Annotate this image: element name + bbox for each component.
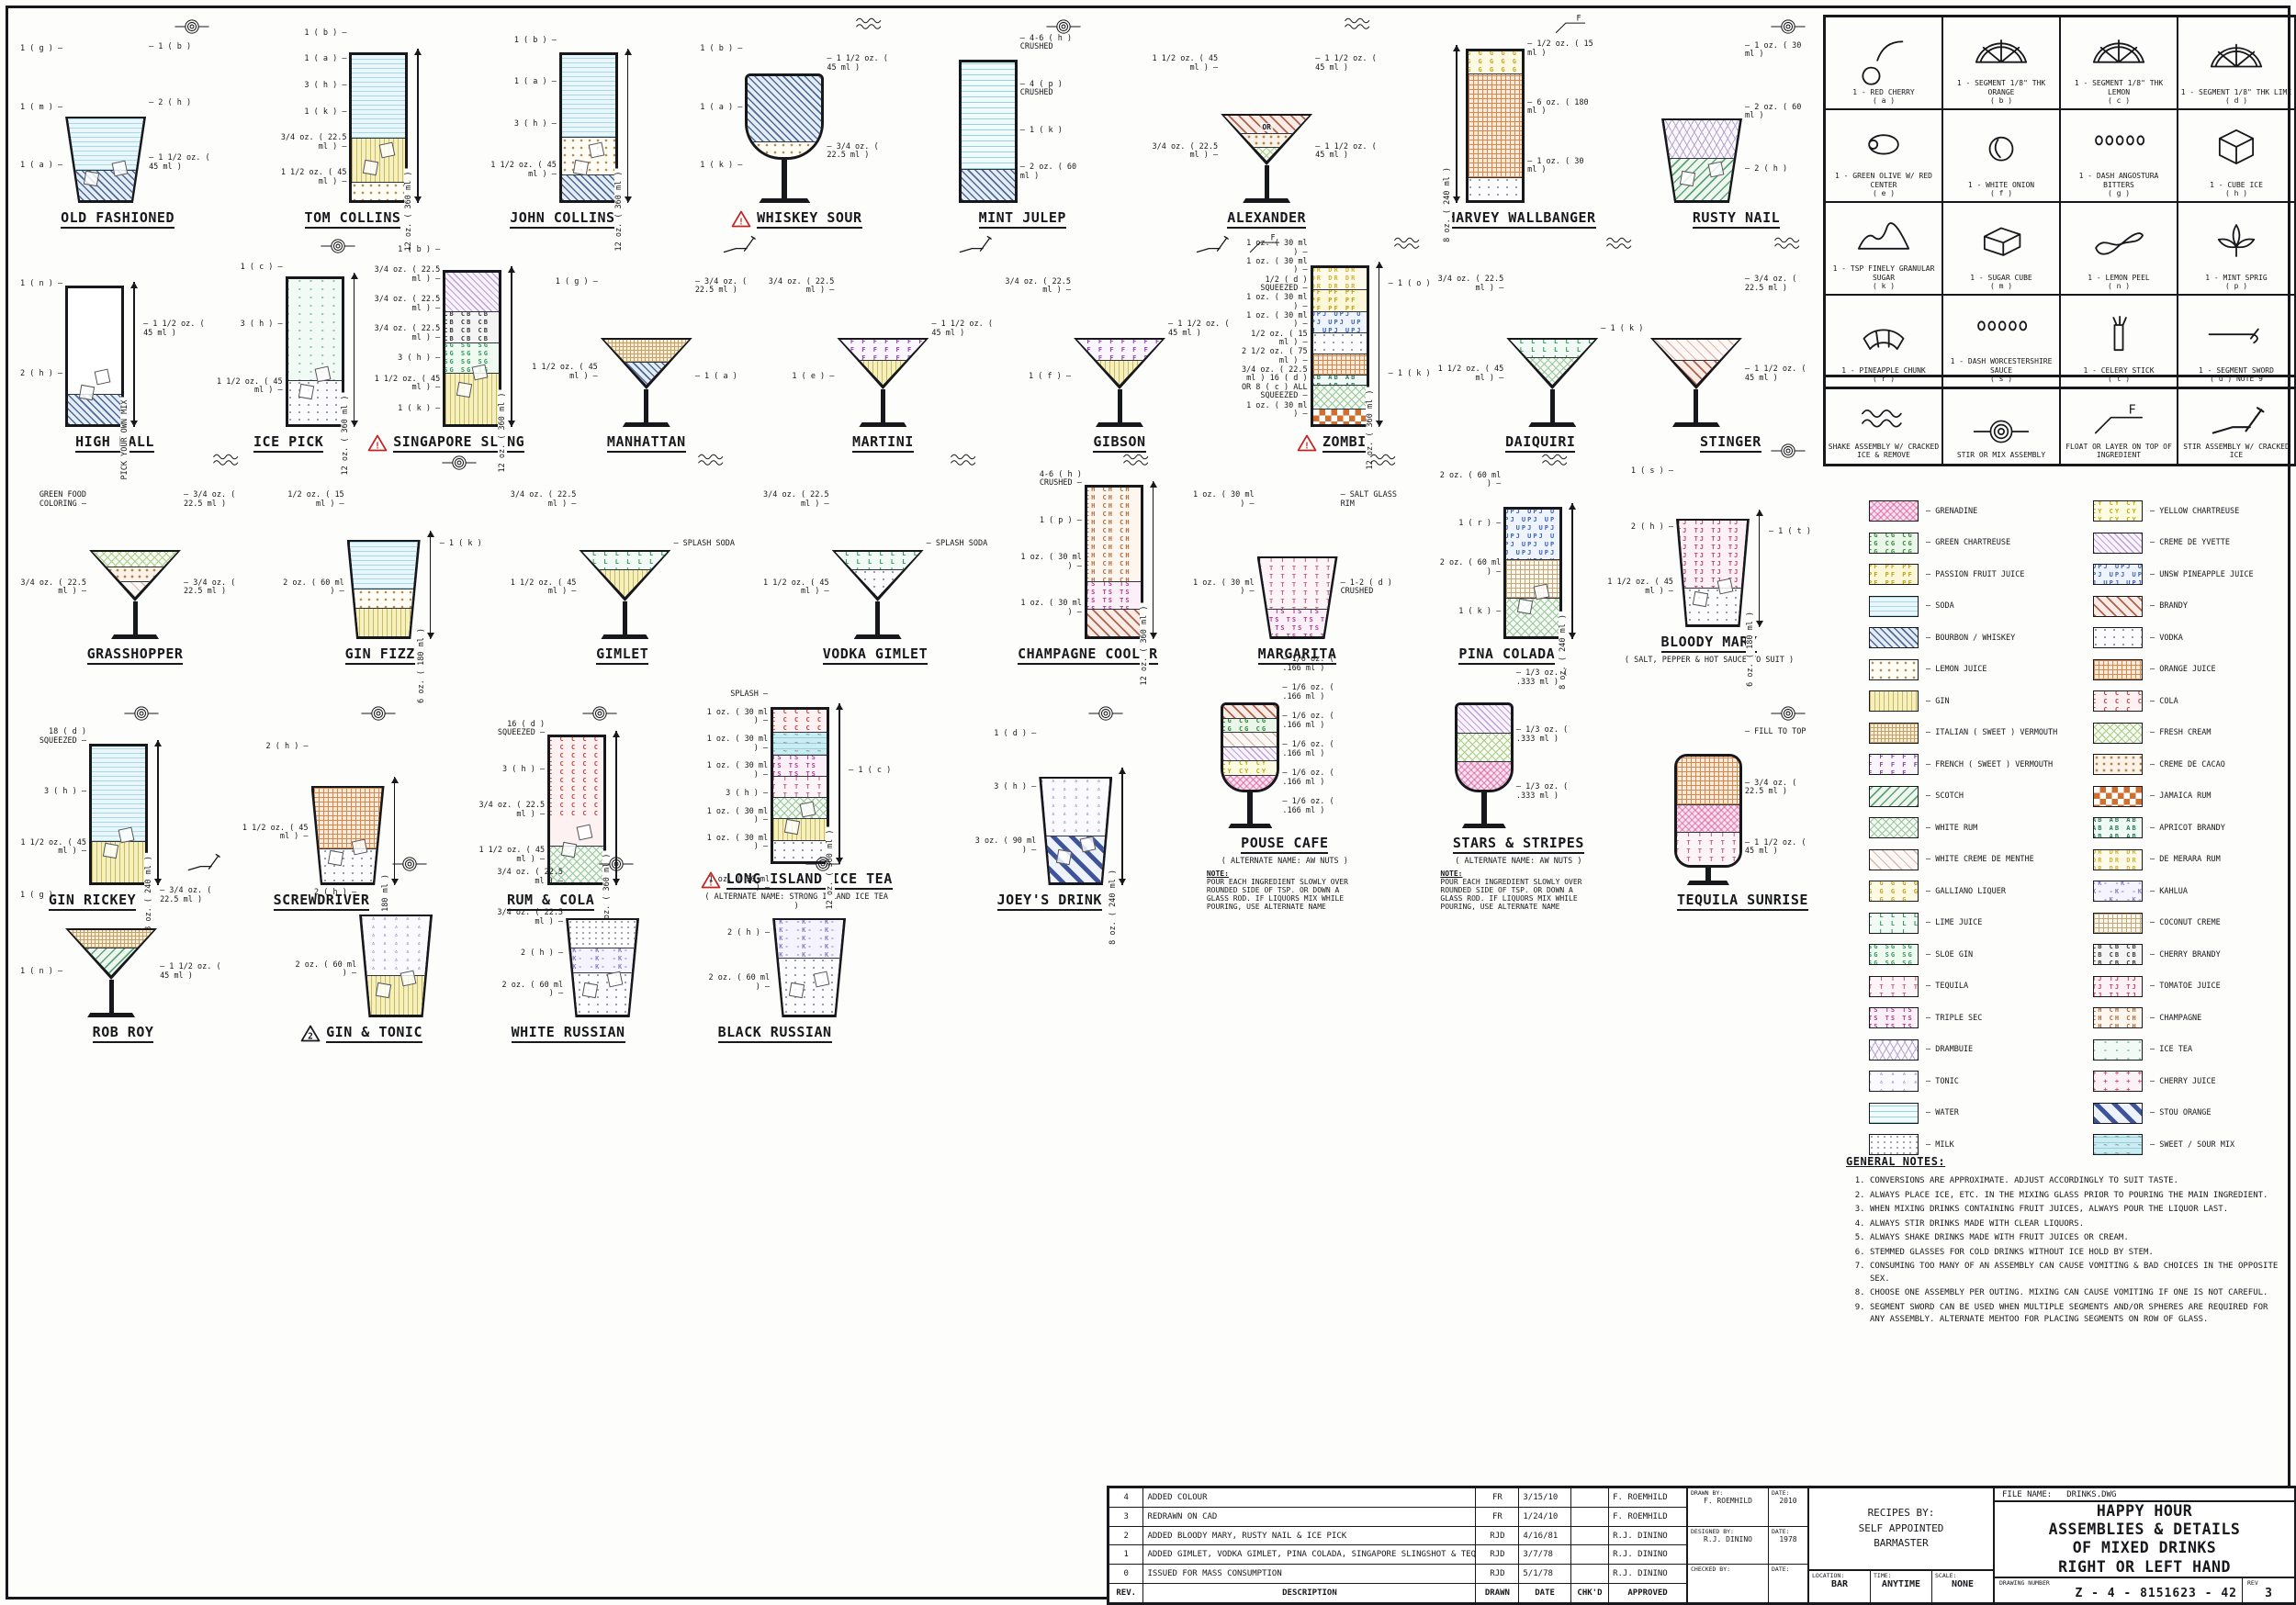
callout: 2 ( h ) —: [1607, 523, 1673, 533]
assembly-symbol-shake: [945, 451, 984, 478]
pattern-letters: -K- -K- -K- -K- -K- -K- -K- -K- -K- -K- …: [775, 920, 843, 958]
ingredient-column-left: — GRENADINECG CG CG CG CG CG CG CG CG CG…: [1869, 500, 2067, 1155]
garnish-1-segment-1-8-thk-lime: 1 - SEGMENT 1/8" THK LIME( d ): [2178, 17, 2295, 109]
assembly-symbol-rod: [184, 852, 222, 880]
ingredient-cherry-juice: + + + + + + + + + + + + + + — CHERRY JUI…: [2093, 1071, 2291, 1092]
drink-name-row: MINT JULEP: [979, 209, 1066, 229]
callout: — 1 1/2 oz. ( 45 ml ): [149, 154, 215, 172]
callouts-right: — 4-6 ( h ) CRUSHED— 4 ( p ) CRUSHED— 1 …: [1020, 20, 1086, 203]
ingredient-layer-yvette: [1458, 705, 1511, 733]
date-value: 2010: [1772, 1497, 1805, 1505]
location-time-scale: LOCATION: BAR TIME: ANYTIME SCALE: NONE: [1809, 1571, 1993, 1602]
glass-inner: -K- -K- -K- -K- -K- -K- -K- -K- -K- -K- …: [775, 920, 843, 1015]
drink-daiquiri: 3/4 oz. ( 22.5 ml ) —1 1/2 oz. ( 45 ml )…: [1437, 234, 1643, 453]
callout: 1 1/2 oz. ( 45 ml ) —: [763, 579, 829, 597]
callouts-right: — 1 1/2 oz. ( 45 ml )— 1 1/2 oz. ( 45 ml…: [1315, 20, 1381, 203]
flag-note-icon: 2: [300, 1025, 321, 1042]
dimension: 8 oz. ( 240 ml ): [1449, 45, 1463, 203]
glass-body: [1455, 702, 1514, 792]
ingredient-green-chartreuse: CG CG CG CG CG CG CG CG CG CG CG CG CG C…: [1869, 533, 2067, 554]
shake-icon: [1851, 404, 1916, 443]
drink-stage: 1 ( s ) —2 ( h ) —1 1/2 oz. ( 45 ml ) —T…: [1607, 439, 1811, 627]
ingredient-layer-ssmix: ~ ~ ~ ~ ~ ~ ~ ~ ~ ~ ~ ~ ~ ~ ~ ~ ~ ~ ~ ~ …: [773, 732, 827, 755]
glass-inner: [1654, 340, 1739, 385]
mound-icon: [1852, 206, 1915, 264]
dimension: 12 oz. ( 360 ml ): [347, 273, 361, 427]
garnish-1-pineapple-chunk: 1 - PINEAPPLE CHUNK( r ): [1825, 295, 1942, 387]
drink-name-row: TOM COLLINS: [305, 209, 401, 229]
garnish-label: 1 - WHITE ONION: [1968, 181, 2034, 190]
glass-body: UPJ UPJ UPJ UPJ UPJ UPJ UPJ UPJ UPJ UPJ …: [1503, 507, 1562, 639]
ice-cube: [784, 819, 800, 835]
callout: 3/4 oz. ( 22.5 ml ) —: [374, 325, 440, 342]
drink-gimlet: 3/4 oz. ( 22.5 ml ) —1 1/2 oz. ( 45 ml )…: [510, 451, 735, 665]
assembly-label: FLOAT OR LAYER ON TOP OF INGREDIENT: [2063, 443, 2175, 460]
revision-cell: ADDED BLOODY MARY, RUSTY NAIL & ICE PICK: [1143, 1527, 1476, 1545]
garnish-label: 1 - LEMON PEEL: [2088, 274, 2149, 283]
callout: 1 1/2 oz. ( 45 ml ) —: [532, 364, 598, 381]
dimension: 12 oz. ( 360 ml ): [504, 266, 518, 427]
ingredient-label: — SCOTCH: [1926, 791, 1964, 801]
shake-icon: [1769, 234, 1807, 258]
float-icon: F: [1245, 234, 1284, 258]
olive-icon: [1852, 113, 1915, 172]
drink-name-row: HARVEY WALLBANGER: [1447, 209, 1596, 229]
ingredient-layer-cola: C C C C C C C C C C C C C C C C C C C C …: [773, 710, 827, 732]
garnish-1-segment-1-8-thk-lemon: 1 - SEGMENT 1/8" THK LEMON( c ): [2060, 17, 2178, 109]
drink-grasshopper: GREEN FOOD COLORING —3/4 oz. ( 22.5 ml )…: [20, 451, 250, 665]
callout: 1 ( c ) —: [217, 264, 283, 273]
drink-subtitle: ( ALTERNATE NAME: AW NUTS ): [1455, 857, 1581, 866]
callout: — 3/4 oz. ( 22.5 ml ): [184, 579, 250, 597]
liquid-layers: [748, 76, 821, 157]
pattern-letters: -K- -K- -K- -K- -K- -K- -K- -K- -K- -K- …: [568, 948, 636, 971]
glass-collins: G G G G G G G G G G G G G G G G G G G G …: [1466, 49, 1525, 203]
glass-foot: [854, 634, 902, 639]
glass-body: SG SG SG SG SG SG SG SG SG SG SG SG SG S…: [443, 270, 501, 427]
dimension-line: [1379, 262, 1380, 427]
revision-cell: 5/1/78: [1519, 1565, 1570, 1583]
time-cell: TIME: ANYTIME: [1871, 1571, 1932, 1602]
drink-stage: GREEN FOOD COLORING —3/4 oz. ( 22.5 ml )…: [20, 451, 250, 639]
drink-rusty-nail: — 1 oz. ( 30 ml )— 2 oz. ( 60 ml )— 2 ( …: [1661, 15, 1811, 229]
ingredient-label: — ITALIAN ( SWEET ) VERMOUTH: [1926, 728, 2057, 737]
glass-stem: [1550, 389, 1555, 422]
ingredient-layer-dr: DR DR DR DR DR DR DR DR DR DR DR DR DR D…: [1313, 268, 1367, 289]
recipes-by: RECIPES BY:SELF APPOINTEDBARMASTER: [1809, 1488, 1993, 1571]
pattern-swatch-fver: F F F F F F F F F F F F F F: [1869, 754, 1919, 775]
callout: GREEN FOOD COLORING —: [20, 491, 86, 509]
location-label: LOCATION:: [1812, 1572, 1867, 1579]
pattern-swatch-tsec: TS TS TS TS TS TS TS TS TS TS TS TS TS T…: [1869, 1007, 1919, 1028]
garnish-label: 1 - SEGMENT SWORD: [2199, 366, 2274, 376]
drops-icon: [2088, 113, 2150, 172]
callout: — 1 ( c ): [849, 767, 891, 776]
liquid-layers: [1654, 340, 1739, 385]
celery-icon: [2088, 298, 2150, 366]
ingredient-layer-upj: UPJ UPJ UPJ UPJ UPJ UPJ UPJ UPJ UPJ UPJ …: [1313, 311, 1367, 333]
ingredient-label: — TOMATOE JUICE: [2150, 982, 2221, 991]
garnish-label: 1 - GREEN OLIVE W/ RED CENTER: [1828, 172, 1940, 189]
glass-inner: L L L L L L L L L L L L L L L L L L L L …: [582, 552, 667, 597]
glass-tumbler: -K- -K- -K- -K- -K- -K- -K- -K- -K- -K- …: [566, 918, 639, 1017]
ingredient-layer-kah: -K- -K- -K- -K- -K- -K- -K- -K- -K- -K- …: [568, 948, 636, 971]
drink-row-3: GREEN FOOD COLORING —3/4 oz. ( 22.5 ml )…: [20, 439, 1811, 665]
callouts-left: 3/4 oz. ( 22.5 ml ) —1 1/2 oz. ( 45 ml )…: [510, 456, 576, 639]
callout: — 1/2 oz. ( 15 ml ): [1527, 40, 1593, 58]
drawing-number-row: DRAWING NUMBER Z - 4 - 8151623 - 42 REV …: [1995, 1578, 2294, 1602]
ice-cube: [1680, 171, 1695, 186]
ingredient-layer-itver: [69, 930, 153, 948]
ice-cube: [363, 159, 378, 174]
assembly-symbol-stir: [597, 852, 636, 880]
pattern-letters: L L L L L L L L L L L L L L: [1869, 913, 1919, 934]
callout: 1 1/2 oz. ( 45 ml ) —: [1152, 55, 1218, 73]
svg-text:F: F: [2129, 404, 2136, 418]
pattern-swatch-stou: [2093, 1103, 2143, 1124]
glass-body: L L L L L L L L L L L L L L L L L L L L …: [832, 550, 924, 601]
pattern-swatch-water: [1869, 1103, 1919, 1124]
callouts-left: 1 ( b ) —1 ( a ) —3 ( h ) —1 1/2 oz. ( 4…: [490, 20, 557, 203]
glass-inner: [68, 118, 143, 200]
drink-stage: 1 1/2 oz. ( 45 ml ) —3/4 oz. ( 22.5 ml )…: [1152, 15, 1381, 203]
drink-vodka-gimlet: 3/4 oz. ( 22.5 ml ) —1 1/2 oz. ( 45 ml )…: [763, 451, 988, 665]
callouts-left: 1 ( n ) —2 ( h ) —: [20, 240, 62, 427]
ingredient-stou-orange: — STOU ORANGE: [2093, 1103, 2291, 1124]
drink-name-row: JOHN COLLINS: [510, 209, 614, 229]
glass-inner: ▵ ▵ ▵ ▵ ▵ ▵ ▵ ▵ ▵ ▵ ▵ ▵ ▵ ▵ ▵ ▵ ▵ ▵ ▵ ▵ …: [1041, 779, 1109, 882]
pattern-letters: UPJ UPJ UPJ UPJ UPJ UPJ UPJ UPJ UPJ UPJ …: [1313, 311, 1367, 333]
callout: 1 ( g ) —: [532, 278, 598, 287]
drink-mint-julep: — 4-6 ( h ) CRUSHED— 4 ( p ) CRUSHED— 1 …: [959, 15, 1086, 229]
callouts-right: — 1 ( k ): [1601, 240, 1643, 427]
rod-icon: [955, 234, 994, 258]
glass-body: TJ TJ TJ TJ TJ TJ TJ TJ TJ TJ TJ TJ TJ T…: [1676, 519, 1750, 627]
pattern-swatch-dram: [1869, 1039, 1919, 1061]
ingredient-triple-sec: TS TS TS TS TS TS TS TS TS TS TS TS TS T…: [1869, 1007, 2067, 1028]
liquid-layers: [1458, 705, 1511, 790]
pattern-swatch-vodka: [2093, 627, 2143, 648]
revision-cell: 4: [1109, 1488, 1143, 1507]
garnish-key: ( d ): [2225, 96, 2247, 106]
revision-cell: 1: [1109, 1545, 1143, 1564]
scale-label: SCALE:: [1935, 1572, 1990, 1579]
revision-header-cell: DESCRIPTION: [1143, 1584, 1476, 1602]
general-note: WHEN MIXING DRINKS CONTAINING FRUIT JUIC…: [1870, 1204, 2287, 1217]
callout: 1 oz. ( 30 ml ) —: [702, 835, 768, 852]
callout: 1 1/2 oz. ( 45 ml ) —: [1437, 365, 1503, 383]
garnish-key: ( e ): [1873, 189, 1895, 198]
callout: 2 ( h ) —: [20, 370, 62, 379]
ingredient-layer-cacao: [93, 567, 177, 582]
callout: 1 oz. ( 30 ml ) —: [1188, 491, 1255, 509]
pattern-letters: ~ ~ ~ ~ ~ ~ ~ ~ ~ ~ ~ ~ ~ ~ ~ ~ ~ ~ ~ ~ …: [773, 732, 827, 755]
callout: — 6 oz. ( 180 ml ): [1527, 99, 1593, 117]
drink-name: WHISKEY SOUR: [757, 209, 861, 229]
drink-name: MINT JULEP: [979, 209, 1066, 229]
file-name-label: FILE NAME:: [2002, 1490, 2052, 1499]
callout: 16 ( d ) SQUEEZED —: [478, 721, 545, 738]
callout: — 1 oz. ( 30 ml ): [1745, 42, 1811, 60]
ingredient-label: — TONIC: [1926, 1077, 1959, 1086]
liquid-layers: SG SG SG SG SG SG SG SG SG SG SG SG SG S…: [445, 273, 499, 424]
dimension: 12 oz. ( 360 ml ): [1146, 481, 1160, 639]
ingredient-layer-cream: [93, 552, 177, 567]
callout: 3/4 oz. ( 22.5 ml ) —: [1005, 278, 1071, 296]
glass-body: ▵ ▵ ▵ ▵ ▵ ▵ ▵ ▵ ▵ ▵ ▵ ▵ ▵ ▵ ▵ ▵ ▵ ▵ ▵ ▵ …: [1039, 777, 1112, 885]
garnish-key: ( f ): [1990, 189, 2012, 198]
glass-wine: [1455, 702, 1514, 828]
pattern-letters: CB CB CB CB CB CB CB CB CB CB CB CB CB C…: [2093, 944, 2143, 965]
signature-row: CHECKED BY:DATE:: [1688, 1565, 1807, 1602]
callout: 1 ( b ) —: [280, 29, 346, 39]
pattern-swatch-itver: [1869, 723, 1919, 744]
glass-stem: [109, 980, 114, 1013]
ingredient-layer-bourbon: [748, 76, 821, 141]
glass-tumbler: TJ TJ TJ TJ TJ TJ TJ TJ TJ TJ TJ TJ TJ T…: [1676, 519, 1750, 627]
ingredient-sloe-gin: SG SG SG SG SG SG SG SG SG SG SG SG SG S…: [1869, 944, 2067, 965]
glass-body: T T T T T T T T T T T T T T T T T T T T …: [1674, 754, 1742, 868]
drink-gin-tonic: 2 ( h ) —2 oz. ( 60 ml ) —▵ ▵ ▵ ▵ ▵ ▵ ▵ …: [290, 852, 433, 1043]
callout: 1 oz. ( 30 ml ) —: [1188, 579, 1255, 597]
ingredient-layer-menthe: [1654, 340, 1739, 360]
ingredient-layer-cream: [1458, 733, 1511, 762]
drink-stage: — 4-6 ( h ) CRUSHED— 4 ( p ) CRUSHED— 1 …: [959, 15, 1086, 203]
callout: — 1 1/2 oz. ( 45 ml ): [1745, 839, 1811, 857]
callout: — 1 ( a ): [695, 373, 761, 382]
ingredient-layer-soda: [562, 55, 615, 137]
callout: 1 ( e ) —: [768, 373, 834, 382]
callouts-left: 3/4 oz. ( 22.5 ml ) —1 1/2 oz. ( 45 ml )…: [1437, 240, 1503, 427]
ingredient-layer-cream: [1224, 147, 1309, 161]
ingredient-orange-juice: — ORANGE JUICE: [2093, 659, 2291, 680]
pattern-letters: TS TS TS TS TS TS TS TS TS TS TS TS TS T…: [1087, 581, 1141, 609]
revision-cell: REDRAWN ON CAD: [1143, 1508, 1476, 1526]
garnish-label: 1 - SEGMENT 1/8" THK LIME: [2181, 88, 2291, 97]
ingredient-layer-coco: [1506, 559, 1559, 598]
callouts-left: SPLASH —1 oz. ( 30 ml ) —1 oz. ( 30 ml )…: [702, 686, 768, 864]
callouts-left: 1 ( s ) —2 ( h ) —1 1/2 oz. ( 45 ml ) —: [1607, 444, 1673, 627]
glass-body: OR: [1221, 114, 1312, 165]
ingredient-label: — BRANDY: [2150, 601, 2188, 611]
segment-icon: [1970, 20, 2032, 79]
recipes-line: BARMASTER: [1874, 1536, 1929, 1552]
ingredient-layer-menthe: [93, 581, 177, 597]
file-name-strip: FILE NAME: DRINKS.DWG: [1995, 1488, 2294, 1502]
ingredient-layer-gin: [445, 373, 499, 424]
assembly-symbol-shake: [1536, 451, 1575, 478]
callout: 1 oz. ( 30 ml ) —: [1242, 312, 1308, 330]
glass-martini: L L L L L L L L L L L L L L L L L L L L …: [579, 550, 670, 639]
drink-name-row: ALEXANDER: [1227, 209, 1306, 229]
ingredient-creme-de-yvette: — CREME DE YVETTE: [2093, 533, 2291, 554]
pattern-letters: G G G G G G G G G G G G G G G G G G G G …: [1469, 51, 1522, 73]
shake-icon: [208, 451, 246, 475]
drink-name: BLACK RUSSIAN: [718, 1024, 832, 1043]
ingredient-label: — JAMAICA RUM: [2150, 791, 2212, 801]
rev-cell: REV 3: [2243, 1578, 2294, 1602]
drink-stage: T T T T T T T T T T T T T T T T T T T T …: [1674, 701, 1811, 885]
ingredient-lime-juice: L L L L L L L L L L L L L L — LIME JUICE: [1869, 913, 2067, 934]
glass-martini: [1650, 338, 1742, 427]
assembly-symbol-shake: [850, 15, 889, 42]
pattern-swatch-cb: CB CB CB CB CB CB CB CB CB CB CB CB CB C…: [2093, 944, 2143, 965]
glass-inner: [604, 340, 689, 385]
pattern-swatch-pf: PF PF PF PF PF PF PF PF PF PF PF PF PF P…: [1869, 564, 1919, 585]
callout: — 1 1/2 oz. ( 45 ml ): [1315, 55, 1381, 73]
callout: 2 1/2 oz. ( 75 ml ) —: [1242, 348, 1308, 365]
garnish-label: 1 - CELERY STICK: [2083, 366, 2154, 376]
glass-inner: TS TS TS TS TS TS TS TS TS TS TS TS TS T…: [1260, 558, 1335, 636]
pattern-letters: -K- -K- -K- -K- -K- -K- -K- -K- -K- -K- …: [2093, 881, 2143, 902]
callout: — 1 ( k ): [1601, 325, 1643, 334]
pattern-letters: F F F F F F F F F F F F F F: [1869, 754, 1919, 775]
garnish-label: 1 - SUGAR CUBE: [1970, 274, 2032, 283]
pattern-swatch-scotch: [1869, 786, 1919, 807]
callout: 1 ( d ) —: [970, 730, 1036, 739]
title-line: OF MIXED DRINKS: [2073, 1539, 2217, 1557]
signature-block: DRAWN BY:F. ROEMHILDDATE:2010DESIGNED BY…: [1688, 1488, 1809, 1602]
callout: 1 oz. ( 30 ml ) —: [703, 876, 770, 893]
assembly-symbol-shake: [692, 451, 731, 478]
callout: — SPLASH SODA: [927, 540, 988, 549]
segment-icon: [2088, 20, 2150, 79]
float-icon: F: [1551, 15, 1590, 39]
callouts-right: — 1 ( k ): [440, 456, 482, 639]
ingredient-grenadine: — GRENADINE: [1869, 500, 2067, 522]
glass-body: [65, 286, 124, 427]
glass-hurricane: T T T T T T T T T T T T T T T T T T T T …: [1674, 754, 1742, 885]
pattern-swatch-jam: [2093, 786, 2143, 807]
callout: 1 1/2 oz. ( 45 ml ) —: [280, 169, 346, 186]
glass-body: L L L L L L L L L L L L L L L L L L L L …: [1506, 338, 1598, 389]
glass-collins: AB AB AB AB AB AB AB AB AB AB AB AB AB A…: [1311, 265, 1369, 427]
drink-harvey-wallbanger: 8 oz. ( 240 ml )G G G G G G G G G G G G …: [1447, 15, 1596, 229]
assembly-symbol-shake: [1118, 451, 1156, 478]
drink-name: JOEY'S DRINK: [997, 892, 1102, 911]
shake-icon: [1536, 451, 1575, 475]
glass-body: F F F F F F F F F F F F F F F F F F F F …: [837, 338, 929, 389]
shake-icon: [945, 451, 984, 475]
garnish-label: 1 - CUBE ICE: [2210, 181, 2263, 190]
glass-foot: [1672, 422, 1720, 427]
drink-name: RUSTY NAIL: [1693, 209, 1780, 229]
drink-stage: 1 ( g ) —1 ( m ) —1 ( a ) —— 1 ( b )— 2 …: [20, 15, 215, 203]
callouts-left: 1 ( b ) —1 ( a ) —3 ( h ) —1 ( k ) —3/4 …: [280, 20, 346, 203]
garnish-key: ( c ): [2108, 96, 2130, 106]
glass-stem: [1118, 389, 1122, 422]
liquid-layers: G G G G G G G G G G G G G G G G G G G G …: [1469, 51, 1522, 200]
callout: 1 ( k ) —: [374, 405, 440, 414]
pattern-swatch-lemon: [1869, 659, 1919, 680]
callout: 2 oz. ( 60 ml ) —: [703, 974, 770, 992]
callout: — 2 oz. ( 60 ml ): [1745, 104, 1811, 121]
dimension-line: [1571, 503, 1573, 639]
dimension-line: [430, 531, 432, 639]
callout: — 1/6 oz. ( .166 ml ): [1282, 656, 1348, 673]
liquid-layers: [352, 55, 405, 200]
ingredient-layer-menthe: [1223, 732, 1277, 746]
pattern-swatch-oj: [2093, 659, 2143, 680]
revision-cell: [1571, 1545, 1609, 1564]
pattern-letters: CG CG CG CG CG CG CG CG CG CG CG CG CG C…: [1223, 718, 1277, 732]
assembly-stir-or-mix-assembly: STIR OR MIX ASSEMBLY: [1942, 376, 2060, 465]
glass-inner: ▵ ▵ ▵ ▵ ▵ ▵ ▵ ▵ ▵ ▵ ▵ ▵ ▵ ▵ ▵ ▵ ▵ ▵ ▵ ▵ …: [362, 916, 430, 1015]
ingredient-layer-brandy: [1087, 609, 1141, 636]
signature-name-cell: DRAWN BY:F. ROEMHILD: [1688, 1488, 1769, 1526]
glass-collins: SG SG SG SG SG SG SG SG SG SG SG SG SG S…: [443, 270, 501, 427]
location-value: BAR: [1812, 1579, 1867, 1589]
revision-cell: RJD: [1476, 1565, 1519, 1583]
liquid-layers: - - - - - - - - - - - - - - - - - - - - …: [288, 279, 342, 424]
ingredient-layer-oj: [1469, 73, 1522, 177]
drink-high-ball: 1 ( n ) —2 ( h ) —PICK YOUR OWN MIX— 1 1…: [20, 234, 209, 453]
title-line: ASSEMBLIES & DETAILS: [2049, 1521, 2241, 1539]
ingredient-layer-cy: CY CY CY CY CY CY CY CY CY CY CY CY CY C…: [1223, 760, 1277, 775]
ingredient-layer-lemon: [350, 589, 418, 608]
ingredient-layer-soda: [352, 55, 405, 138]
callout: — 1/3 oz. ( .333 ml ): [1516, 726, 1582, 744]
signature-label: DRAWN BY:: [1691, 1489, 1765, 1497]
pattern-swatch-wrum: [1869, 817, 1919, 838]
ingredient-layer-vodka: [568, 972, 636, 1015]
glass-body: CY CY CY CY CY CY CY CY CY CY CY CY CY C…: [1221, 702, 1279, 792]
ingredient-layer-vodka: [1313, 332, 1367, 353]
pattern-swatch-tj: TJ TJ TJ TJ TJ TJ TJ TJ TJ TJ TJ TJ TJ T…: [2093, 976, 2143, 997]
callout: 1 ( n ) —: [20, 968, 62, 977]
liquid-layers: [962, 62, 1015, 200]
dimension-line: [1121, 768, 1123, 885]
glass-rocks: [65, 117, 146, 203]
pattern-letters: TS TS TS TS TS TS TS TS TS TS TS TS TS T…: [1869, 1007, 1919, 1028]
callouts-right: — 1 1/2 oz. ( 45 ml ): [143, 240, 209, 427]
general-note: CONSUMING TOO MANY OF AN ASSEMBLY CAN CA…: [1870, 1261, 2287, 1285]
revision-row: 2ADDED BLOODY MARY, RUSTY NAIL & ICE PIC…: [1109, 1527, 1686, 1546]
drink-alexander: 1 1/2 oz. ( 45 ml ) —3/4 oz. ( 22.5 ml )…: [1152, 15, 1381, 229]
ingredient-layer-vodka: [775, 958, 843, 1015]
rev-value: 3: [2247, 1587, 2290, 1600]
glass-tumbler: ▵ ▵ ▵ ▵ ▵ ▵ ▵ ▵ ▵ ▵ ▵ ▵ ▵ ▵ ▵ ▵ ▵ ▵ ▵ ▵ …: [359, 915, 433, 1017]
ingredient-label: — BOURBON / WHISKEY: [1926, 634, 2015, 643]
ingredient-label: — TEQUILA: [1926, 982, 1968, 991]
callout: 1 1/2 oz. ( 45 ml ) —: [1607, 578, 1673, 596]
drink-subtitle: ( ALTERNATE NAME: AW NUTS ): [1221, 857, 1348, 866]
assembly-symbol-shake: [1365, 451, 1403, 478]
title-block: 4ADDED COLOURFR3/15/10F. ROEMHILD3REDRAW…: [1107, 1486, 2296, 1605]
callout: 1 ( s ) —: [1607, 467, 1673, 477]
drink-pina-colada: 2 oz. ( 60 ml ) —1 ( r ) —2 oz. ( 60 ml …: [1435, 451, 1579, 665]
ingredient-layer-vodka: [288, 380, 342, 424]
callout: 1 ( b ) —: [374, 246, 440, 255]
assembly-symbol-stir: [1044, 15, 1083, 42]
dimension-line: [627, 49, 629, 203]
cherry-icon: [1852, 20, 1915, 88]
dimension: PICK YOUR OWN MIX: [127, 282, 141, 427]
callout: 1 ( r ) —: [1435, 520, 1501, 529]
segment-icon: [2205, 20, 2268, 88]
callout: 1 oz. ( 30 ml ) —: [702, 709, 768, 726]
drink-margarita: 1 oz. ( 30 ml ) —1 oz. ( 30 ml ) —TS TS …: [1188, 451, 1407, 665]
ingredient-layer-grenadine: [1223, 775, 1277, 790]
callout: — 2 oz. ( 60 ml ): [1020, 163, 1086, 181]
callout: — 1 1/2 oz. ( 45 ml ): [1168, 320, 1234, 338]
pattern-letters: ▵ ▵ ▵ ▵ ▵ ▵ ▵ ▵ ▵ ▵ ▵ ▵ ▵ ▵ ▵ ▵ ▵ ▵ ▵ ▵ …: [362, 916, 430, 975]
dimension: 8 oz. ( 240 ml ): [1565, 503, 1579, 639]
ingredient-layer-grenadine: [1458, 761, 1511, 790]
dimension: 12 oz. ( 360 ml ): [621, 49, 635, 203]
ice-cube: [400, 971, 416, 987]
callout: — 1 1/2 oz. ( 45 ml ): [1745, 365, 1811, 383]
